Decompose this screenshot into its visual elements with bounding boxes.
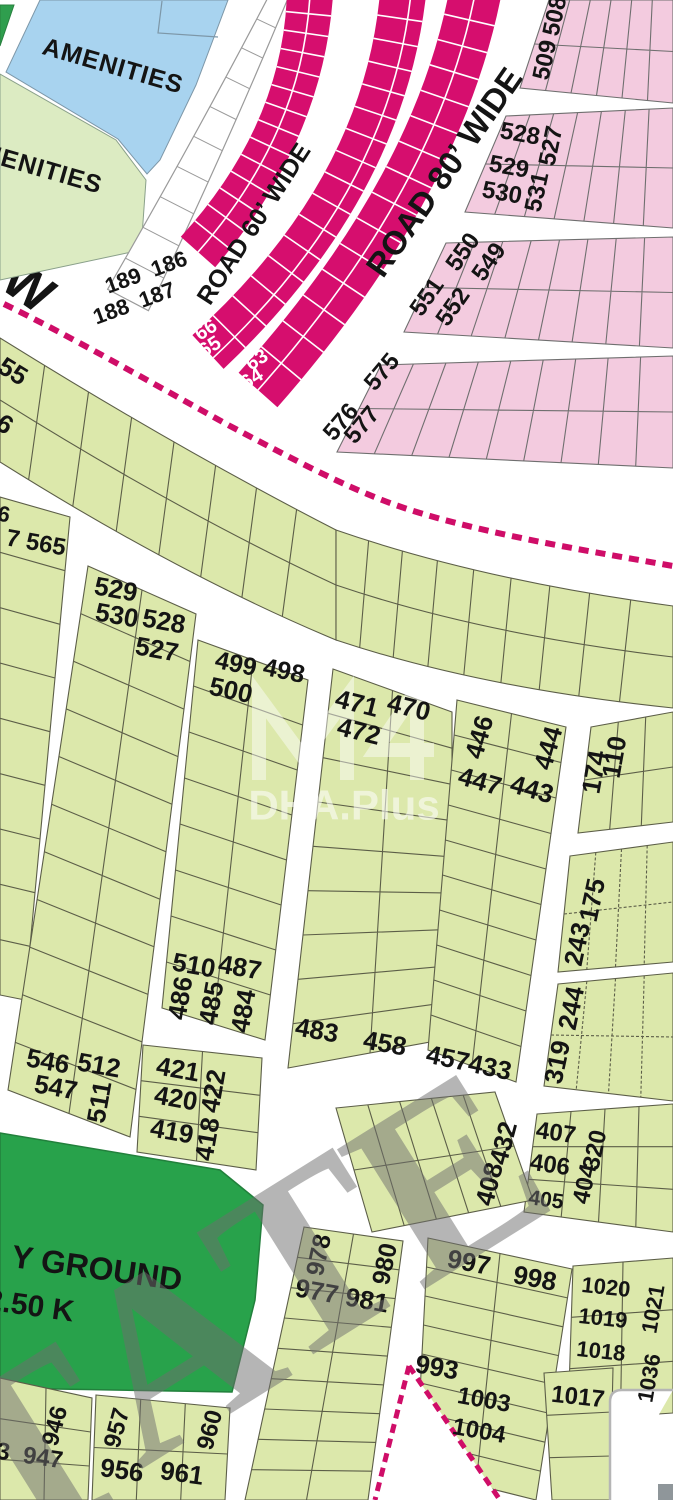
svg-text:1019: 1019: [577, 1303, 628, 1333]
svg-text:1020: 1020: [580, 1272, 631, 1302]
svg-text:1018: 1018: [575, 1336, 626, 1366]
svg-text:DHA.Plus: DHA.Plus: [248, 782, 439, 829]
svg-text:1017: 1017: [550, 1381, 606, 1413]
svg-text:407: 407: [534, 1117, 577, 1149]
